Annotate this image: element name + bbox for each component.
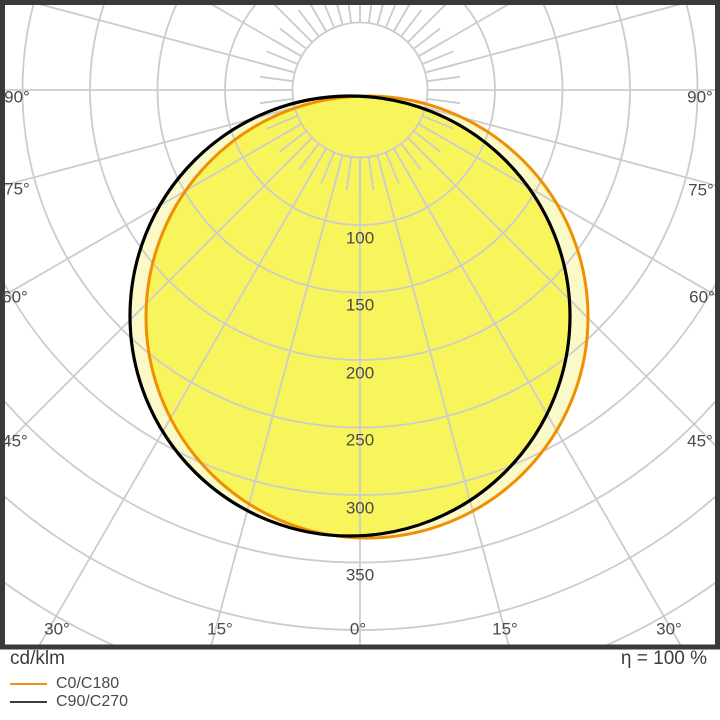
polar-chart-canvas [0,0,720,720]
legend-label-c90-c270: C90/C270 [56,694,128,710]
legend-label-c0-c180: C0/C180 [56,676,119,692]
gamma-label-left-60: 60° [2,289,28,306]
gamma-label-bottom-right-15: 15° [492,621,518,638]
legend-line-c90-c270 [10,701,47,703]
gamma-label-right-75: 75° [688,182,714,199]
photometric-diagram: 100 150 200 250 300 350 90° 75° 60° 45° … [0,0,720,720]
ring-label-150: 150 [346,297,374,314]
efficiency-label: η = 100 % [621,649,707,668]
ring-label-200: 200 [346,365,374,382]
ring-label-300: 300 [346,500,374,517]
legend-line-c0-c180 [10,683,47,685]
gamma-label-right-60: 60° [689,289,715,306]
gamma-label-bottom-right-30: 30° [656,621,682,638]
gamma-label-bottom-0: 0° [350,621,366,638]
gamma-label-left-75: 75° [4,181,30,198]
gamma-label-bottom-left-15: 15° [207,621,233,638]
gamma-label-right-90: 90° [687,89,713,106]
gamma-label-right-45: 45° [687,433,713,450]
ring-label-350: 350 [346,567,374,584]
gamma-label-left-45: 45° [2,433,28,450]
ring-label-100: 100 [346,230,374,247]
ring-label-250: 250 [346,432,374,449]
gamma-label-bottom-left-30: 30° [44,621,70,638]
unit-label: cd/klm [10,649,65,668]
gamma-label-left-90: 90° [4,89,30,106]
